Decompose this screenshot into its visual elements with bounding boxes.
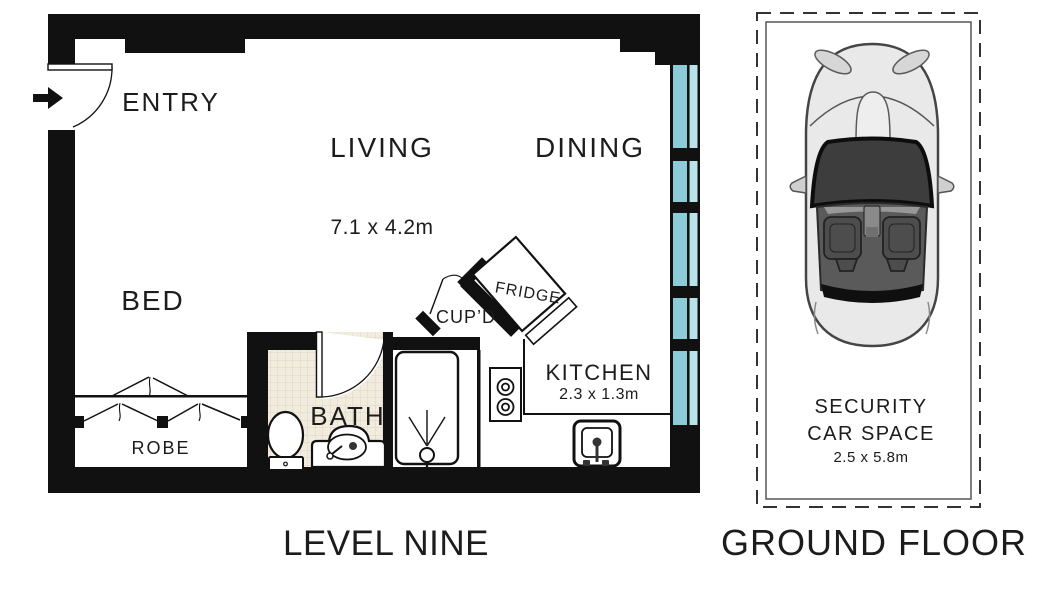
label-bath: BATH xyxy=(310,401,385,431)
shower-icon xyxy=(396,352,458,468)
wall-left-lower xyxy=(48,130,75,493)
car-space-panel: SECURITY CAR SPACE 2.5 x 5.8m GROUND FLO… xyxy=(721,13,1027,563)
window-mullion-3 xyxy=(670,286,700,298)
label-car-space: CAR SPACE xyxy=(807,423,935,445)
window-mullion-4 xyxy=(670,339,700,351)
car-console-detail xyxy=(866,227,878,237)
car-hood-dome xyxy=(856,92,890,141)
floorplan-page: ENTRY LIVING 7.1 x 4.2m DINING BED ROBE … xyxy=(0,0,1056,600)
robe-bracket-right xyxy=(241,416,253,428)
robe-track-line xyxy=(75,395,247,398)
window-frame-left xyxy=(670,65,673,425)
entry-door-leaf xyxy=(48,64,112,70)
label-level-nine: LEVEL NINE xyxy=(283,524,489,563)
wall-left-upper xyxy=(48,14,75,64)
car-illustration xyxy=(790,44,954,346)
wall-bath-left xyxy=(247,332,268,467)
sink-icon xyxy=(574,421,620,466)
car-windshield xyxy=(812,139,932,207)
label-robe: ROBE xyxy=(131,438,190,458)
wall-bath-top xyxy=(247,332,318,350)
floorplan-canvas: ENTRY LIVING 7.1 x 4.2m DINING BED ROBE … xyxy=(0,0,1056,600)
label-living: LIVING xyxy=(330,132,434,163)
wall-bottom xyxy=(48,467,700,493)
window-frame-right xyxy=(698,65,701,425)
entry-arrow-icon xyxy=(33,87,63,109)
label-bed: BED xyxy=(121,285,185,316)
label-cupboard: CUP’D xyxy=(436,307,496,327)
robe-fold-upper-cusp xyxy=(149,377,150,397)
label-entry: ENTRY xyxy=(122,87,220,117)
toilet-icon xyxy=(268,412,303,470)
label-dining: DINING xyxy=(535,132,645,163)
cooktop-icon xyxy=(490,368,521,421)
entry-door-arc xyxy=(73,67,112,127)
wall-right-lower xyxy=(670,425,700,477)
label-kitchen: KITCHEN xyxy=(545,360,652,385)
window-mullion-2 xyxy=(670,202,700,213)
robe-bracket-left xyxy=(73,416,84,428)
label-car-space-dimensions: 2.5 x 5.8m xyxy=(833,449,908,466)
window-glass-light-pane xyxy=(690,65,698,425)
car-headrest-right xyxy=(887,259,908,271)
label-ground-floor: GROUND FLOOR xyxy=(721,522,1027,563)
car-headrest-left xyxy=(836,259,857,271)
label-kitchen-dimensions: 2.3 x 1.3m xyxy=(559,386,639,403)
robe-bracket-mid xyxy=(157,416,168,428)
wall-shower-top xyxy=(393,337,480,350)
label-security: SECURITY xyxy=(814,396,927,418)
wall-top-inner-segment xyxy=(125,39,245,53)
car-space-labels: SECURITY CAR SPACE 2.5 x 5.8m GROUND FLO… xyxy=(721,396,1027,563)
wall-top xyxy=(48,14,700,39)
window-mullion-1 xyxy=(670,148,700,161)
wall-corner-step-2 xyxy=(655,39,700,65)
car-mirror-left xyxy=(790,176,806,193)
robe-doors xyxy=(73,377,253,428)
wall-kitchen-thin xyxy=(477,350,481,467)
bath-door-leaf xyxy=(317,332,323,397)
label-living-dimensions: 7.1 x 4.2m xyxy=(330,216,433,239)
car-mirror-right xyxy=(938,176,954,193)
window-wall xyxy=(670,65,700,425)
window-frame-mid xyxy=(687,65,690,425)
